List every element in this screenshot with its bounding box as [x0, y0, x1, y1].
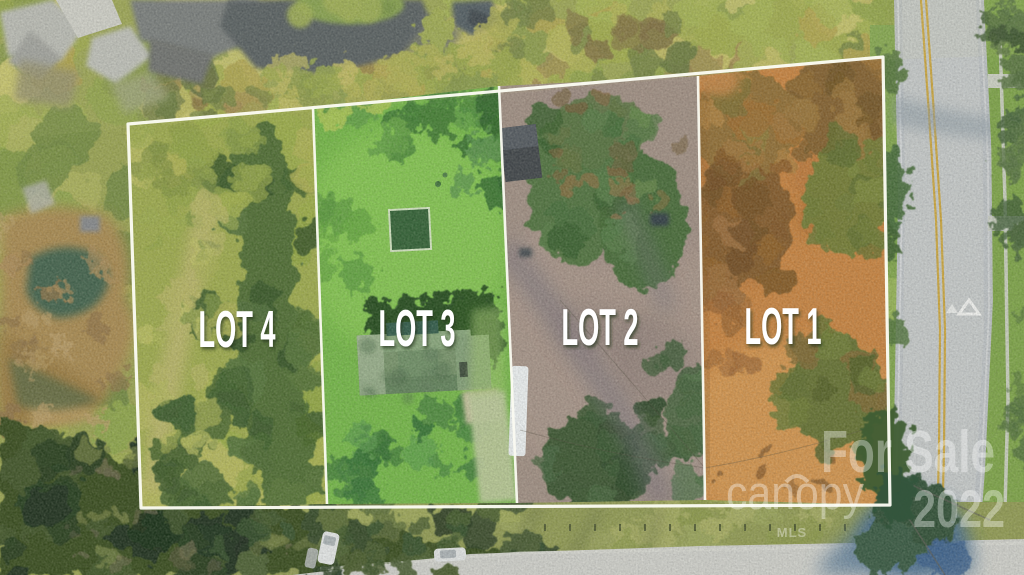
svg-text:LOT 2: LOT 2 [562, 299, 639, 357]
svg-text:2022: 2022 [913, 480, 1005, 539]
svg-text:canopy: canopy [726, 466, 864, 519]
svg-text:LOT 1: LOT 1 [745, 298, 822, 356]
svg-text:MLS: MLS [777, 525, 807, 540]
svg-text:LOT 3: LOT 3 [379, 300, 456, 358]
svg-text:LOT 4: LOT 4 [199, 301, 276, 359]
